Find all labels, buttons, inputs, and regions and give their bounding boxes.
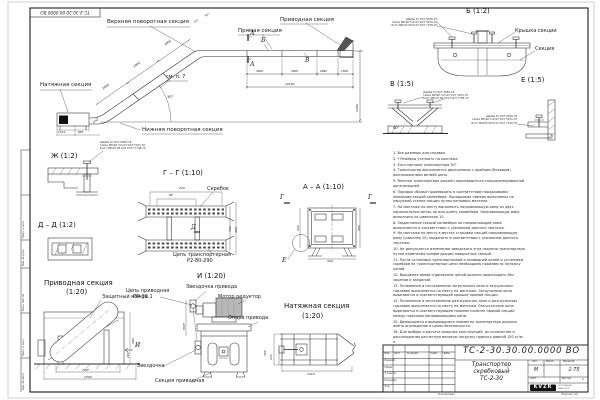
section-mark-d: Д: [191, 225, 196, 231]
detail-gg-title: Г – Г (1:10): [163, 170, 203, 177]
tb-col-podp: Подп.: [431, 353, 438, 355]
detail-e-title: Е (1:5): [521, 77, 544, 84]
note-item: 15. Движущиеся и вращающиеся элементы тр…: [393, 320, 525, 330]
dim-gg-320: 320: [179, 187, 185, 190]
label-see-note: см. п. 7: [166, 75, 185, 80]
title-block-name-2: скребковый: [455, 370, 528, 376]
tb-scale-header: Масштаб: [563, 361, 574, 363]
note-item: 9. На монтаже по месту в местах стыковки…: [393, 231, 525, 245]
note-item: 11. После установки транспортерной и при…: [393, 258, 525, 272]
dim-gg-460: 460: [235, 227, 238, 233]
dim-tension-560: 560: [264, 350, 267, 356]
note-item: 10. Не допускается изменение заводского …: [393, 247, 525, 257]
section-mark-a-top: А: [250, 31, 255, 37]
callout-line: Болт М8х25.58.019 ГОСТ 7798-70: [378, 24, 437, 27]
label-upper-turn-section: Верхняя поворотная секция: [107, 20, 189, 26]
dim-height: 5480: [356, 104, 359, 112]
tb-col-docnum: № докум.: [407, 353, 419, 355]
label-lower-turn-section: Нижняя поворотная секция: [142, 128, 223, 134]
label-conveyor-chain-2: Р2-80-290: [187, 259, 213, 264]
fastener-callout-b: Шайба 8 ГОСТ 6958-78 Гайка М8-6Н.5.019 Г…: [378, 18, 437, 28]
tb-col-data: Дата: [444, 353, 450, 355]
label-drive-section-view: Секция приводная: [155, 379, 204, 384]
detail-mark-b: Б: [261, 38, 265, 44]
detail-mark-e: Е: [282, 258, 286, 264]
tb-col-list: Лист: [394, 353, 400, 355]
view-mark-i: И: [135, 343, 140, 349]
label-drive-sprocket: Звездочка привода: [186, 285, 237, 290]
dim-i-800: 800*: [183, 323, 186, 330]
label-tension-section: Натяжная секция: [40, 83, 91, 89]
drive-section-scale: (1:20): [66, 289, 87, 296]
label-motor-reducer: Мотор редуктор: [218, 295, 261, 300]
tb-lit-value: М: [528, 368, 544, 373]
note-item: 1. Все размеры для справок.: [393, 151, 525, 156]
tb-row-razrab: Разраб.: [385, 359, 396, 362]
detail-v-title: В (1:5): [390, 81, 414, 88]
label-drive-chain-2: ПР-38,1: [133, 295, 153, 300]
tb-sheets-label: Листов: [562, 378, 571, 381]
note-item: 7. На монтаже по месту выполнить направл…: [393, 205, 525, 219]
label-sprocket: Звездочка: [137, 364, 164, 369]
title-block-name-3: ТС-2-30: [455, 377, 528, 383]
dim-seg-1500: 1500: [341, 70, 348, 73]
section-mark-a-bottom: А: [250, 62, 255, 68]
label-drive-support: Опора привода: [228, 316, 268, 321]
title-block-doc-number: ТС-2-30.30.00.0000 ВО: [455, 347, 588, 356]
side-strip-cell: Взам. инв. №: [23, 294, 26, 311]
logo-side-text-1: КОТЕЛЬНЫЙ: [558, 385, 572, 387]
label-section: Секция: [535, 47, 554, 52]
dim-aa-100: 100: [297, 225, 300, 231]
tb-row-nkontr: Н.контр.: [385, 379, 398, 382]
side-strip-cell: Подп. и дата: [23, 339, 26, 356]
label-drive-section: Приводная секция: [280, 18, 334, 24]
section-mark-g-left: Г: [280, 195, 284, 201]
tension-section-title: Натяжная секция: [284, 303, 349, 310]
dim-aa-340: 340: [327, 260, 333, 263]
label-section-cover: Крышка секции: [515, 29, 557, 34]
dim-gg-80: 80: [169, 194, 173, 197]
drive-section-title: Приводная секция: [44, 280, 113, 287]
note-item: 3. Угол наклона транспортера 30°.: [393, 163, 525, 168]
dim-seg-1: 3000: [256, 70, 263, 73]
note-item: 12. Вращение валов и движение цепей долж…: [393, 273, 525, 283]
dim-tension-850: 850: [78, 131, 83, 134]
tb-sheets-value: 1: [582, 378, 584, 381]
dim-drive-1500: 1500: [84, 376, 92, 379]
dim-seg-2660: 2660: [320, 70, 327, 73]
tb-row-utv: Утв.: [385, 385, 391, 388]
note-item: 6. Порядок сборки производить в соответс…: [393, 190, 525, 204]
side-strip-cell: Инв. № подл.: [23, 373, 26, 390]
dim-drive-560: 560: [132, 338, 135, 344]
tb-mass-header: Масса: [546, 361, 554, 363]
technical-notes: 1. Все размеры для справок. 2. * Размеры…: [393, 151, 525, 346]
note-item: 5. Монтаж транспортера должен производит…: [393, 179, 525, 189]
label-straight-section: Прямая секция: [238, 29, 282, 35]
label-scraper: Скребок: [207, 187, 229, 192]
tb-scale-value: 1:75: [560, 368, 588, 373]
tension-section-scale: (1:20): [302, 313, 323, 320]
tb-row-tkontr: Т.контр.: [385, 372, 397, 375]
note-item: 16. Для выбора и расчета опорных констру…: [393, 330, 525, 344]
note-item: 8. Закрепление секций конвейера на напра…: [393, 221, 525, 231]
dim-total-length: 10160: [285, 83, 295, 86]
fastener-callout-e: Шайба 8 ГОСТ 6958-78 Гайка М8-6Н.5.019 Г…: [458, 115, 517, 125]
note-item: 13. Положение и изготовление загрузочных…: [393, 284, 525, 298]
detail-zh-title: Ж (1:2): [51, 153, 78, 160]
callout-line: Болт М8х25.58.019 ГОСТ 7798-70: [458, 122, 517, 125]
note-item: 14. Положение и изготовление разгрузочны…: [393, 299, 525, 318]
dim-angle: 30°: [167, 96, 173, 100]
detail-aa-title: А – А (1:10): [303, 184, 344, 191]
note-item: 4. Транспортер выполняется двухцепным с …: [393, 168, 525, 178]
fastener-callout-zh: Шайба 8 ГОСТ 6958-78 Гайка М8-6Н.5.019 Г…: [100, 141, 146, 151]
copied-label: Копировал: [438, 393, 455, 396]
drawing-sheet: ТС-2-30.30.00.0000 ВО Верхняя поворотная…: [0, 0, 600, 400]
dim-drive-780: 780*: [82, 369, 89, 372]
tb-sheet-label: Лист: [530, 378, 536, 381]
side-strip-cell: Подп. и дата: [23, 221, 26, 238]
note-item: 2. * Размеры уточнить на монтаже.: [393, 157, 525, 162]
tb-lit-header: Лит.: [532, 361, 538, 363]
dim-tension-w-1515: 1515: [307, 373, 315, 376]
detail-b-title: Б (1:2): [466, 8, 490, 15]
logo-side-text-2: ЗАВОД РФ: [558, 388, 569, 390]
corner-stamp-number: ТС-2-30.30.00.0000 ВО: [30, 8, 100, 17]
detail-dd-title: Д – Д (1:2): [38, 222, 76, 229]
tb-col-izm: Изм.: [385, 353, 391, 355]
fastener-callout-v: Шайба 8 ГОСТ 6958-78 Гайка М8-6Н.5.019 Г…: [423, 91, 469, 101]
callout-line: Болт М8х25.58.019 ГОСТ 7798-70: [423, 97, 469, 100]
dim-seg-2: 3000: [291, 70, 298, 73]
section-mark-g-right: Г: [368, 195, 372, 201]
dim-tension-255: 255: [270, 354, 273, 360]
dim-gg-700: 700: [229, 226, 232, 232]
view-i-title: И (1:20): [197, 273, 226, 280]
kvzr-logo: KVZR: [530, 385, 556, 392]
format-label: Формат А2: [561, 393, 578, 396]
side-strip-cell: Инв. № дубл.: [23, 249, 26, 266]
dim-v-angle: 60°: [393, 127, 399, 131]
dim-tension-1515: 1515: [58, 131, 65, 134]
dim-aa-380: 380: [358, 225, 361, 231]
detail-mark-v: В: [305, 58, 309, 64]
tb-row-prov: Пров.: [385, 366, 393, 369]
title-block-name-1: Транспортер: [455, 363, 528, 369]
callout-line: Болт М8х25.58.019 ГОСТ 7798-70: [100, 147, 146, 150]
label-conveyor-chain-1: Цепь транспортерная: [173, 253, 231, 258]
dim-drive-260: 260: [127, 352, 130, 358]
